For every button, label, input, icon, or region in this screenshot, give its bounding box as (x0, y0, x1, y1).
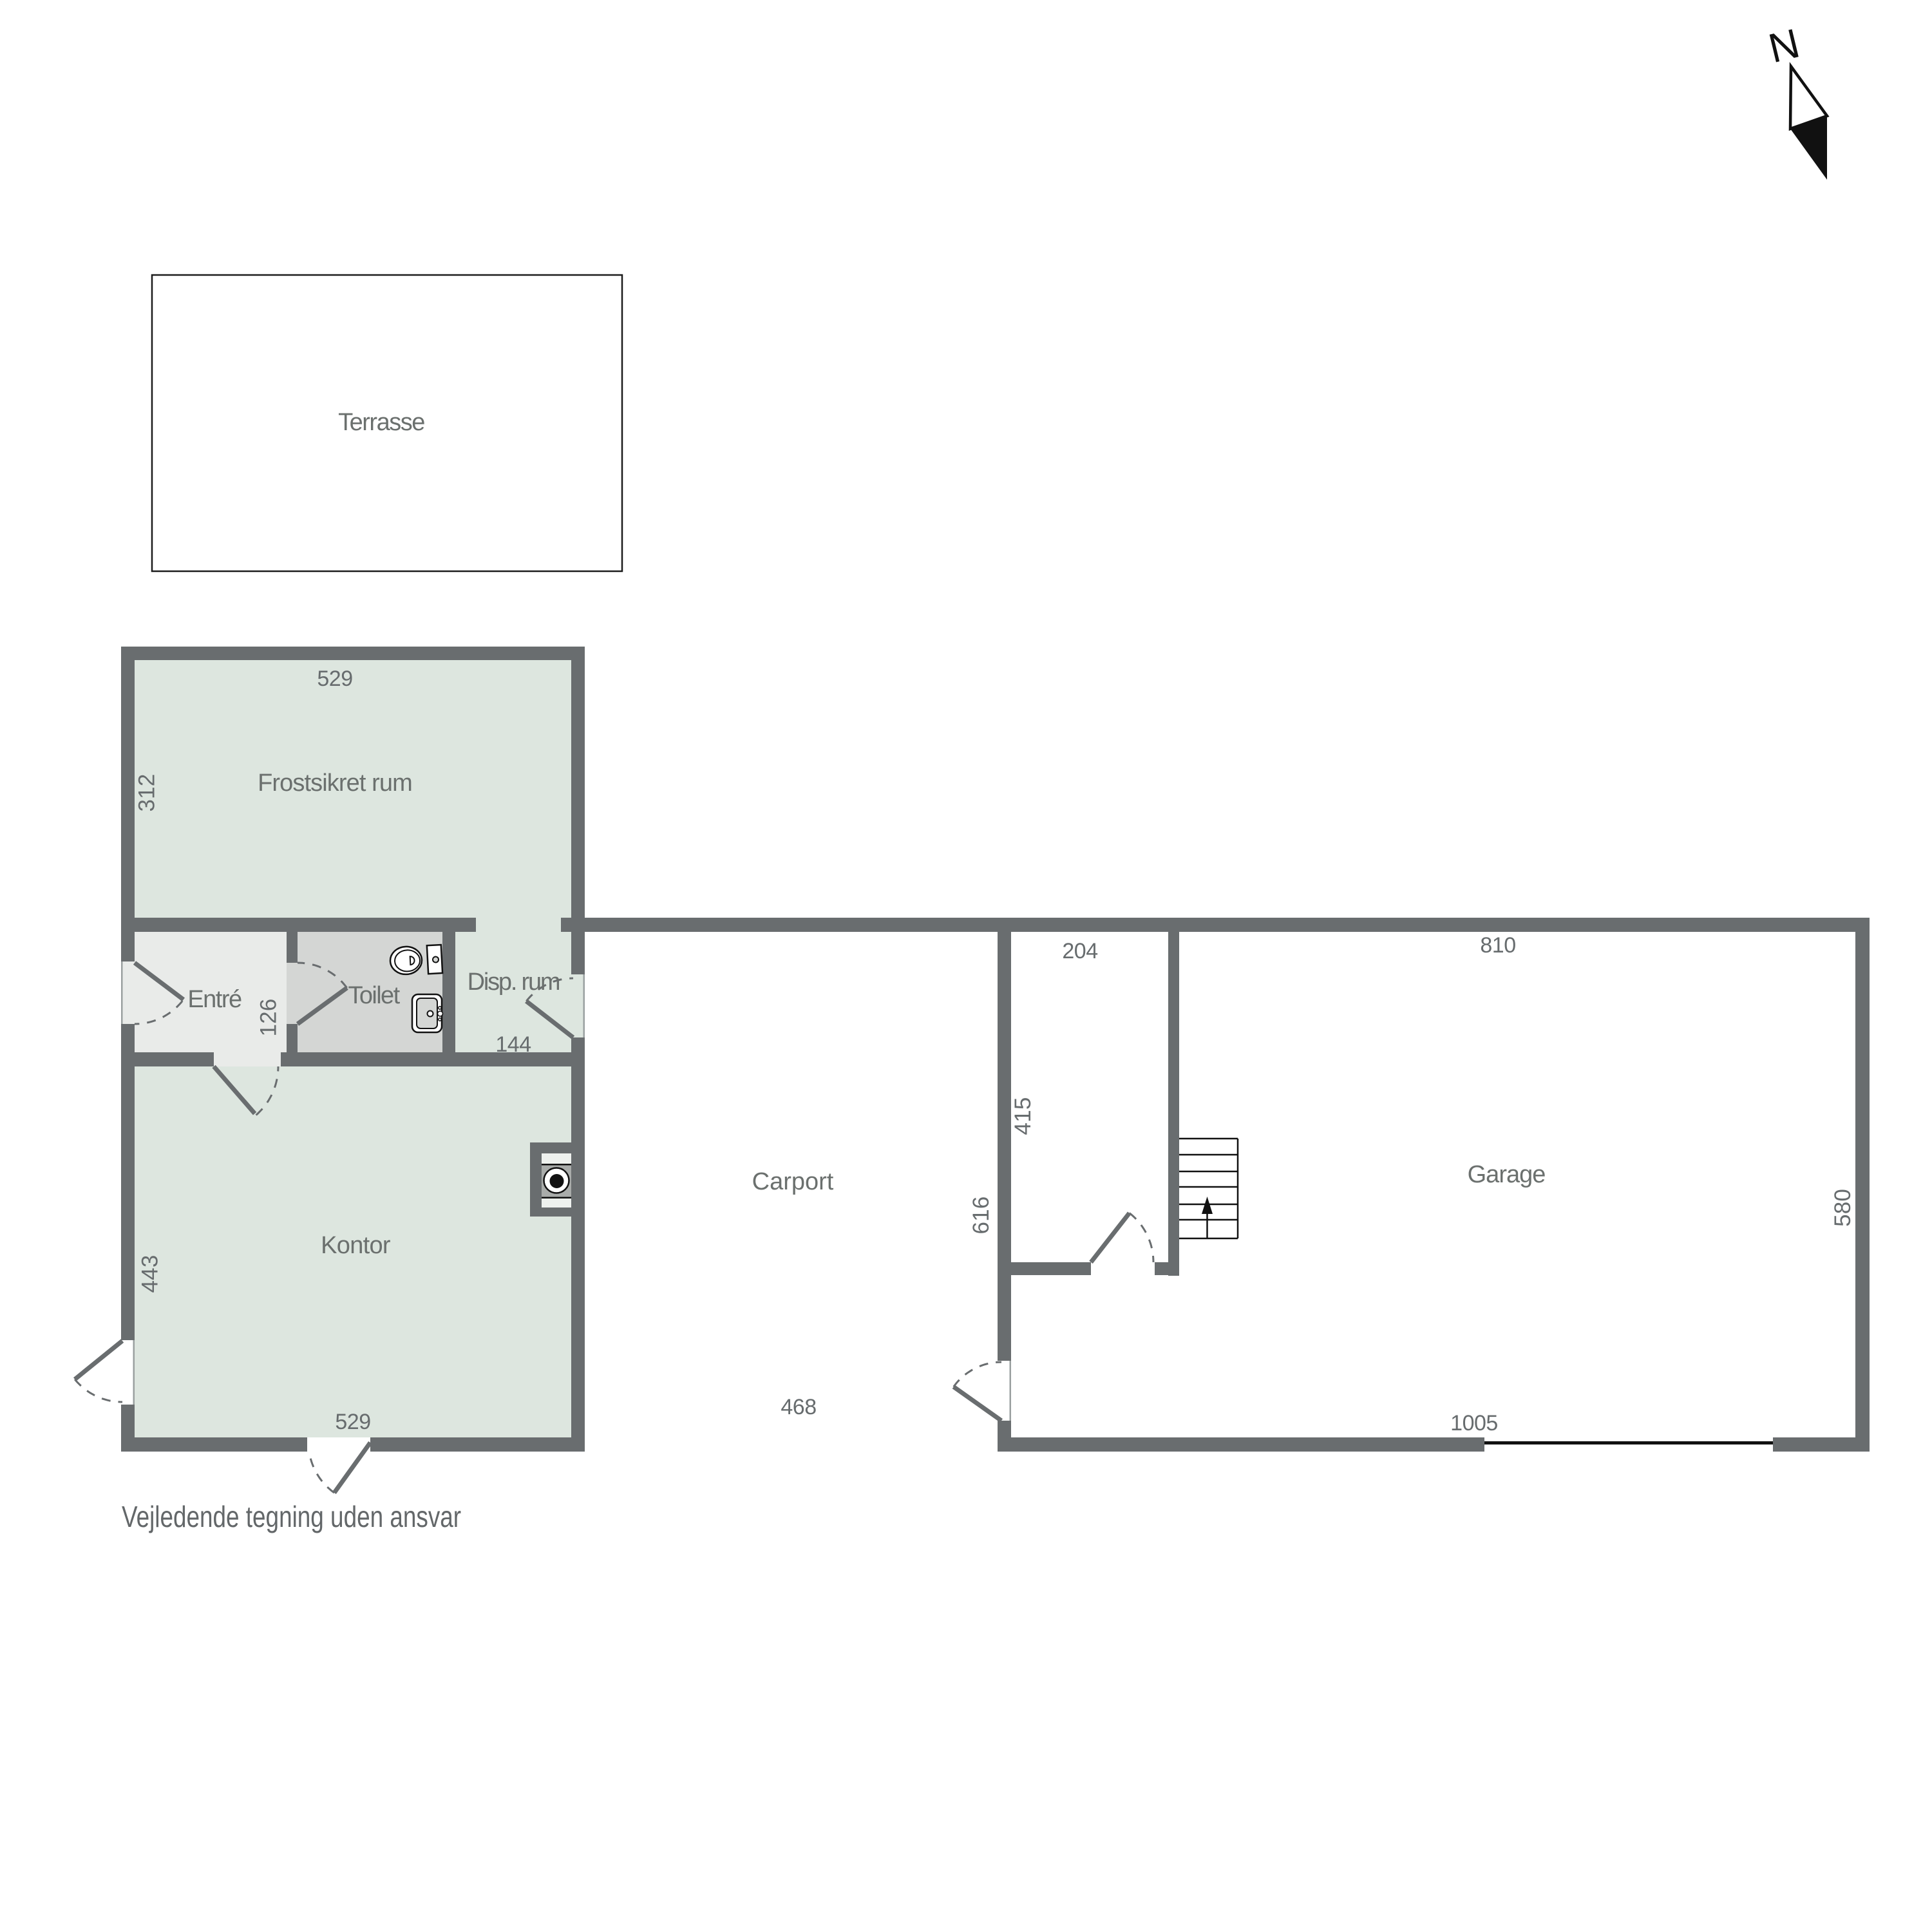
svg-text:468: 468 (781, 1395, 816, 1419)
svg-text:415: 415 (1010, 1097, 1036, 1135)
svg-text:Toilet: Toilet (348, 982, 400, 1009)
svg-text:1005: 1005 (1450, 1411, 1498, 1435)
svg-text:Garage: Garage (1468, 1161, 1546, 1188)
svg-text:Carport: Carport (752, 1168, 834, 1195)
svg-text:443: 443 (138, 1255, 163, 1293)
svg-text:Terrasse: Terrasse (338, 409, 424, 436)
svg-text:810: 810 (1480, 933, 1515, 958)
svg-text:Entré: Entré (187, 986, 241, 1013)
svg-text:529: 529 (317, 667, 352, 691)
svg-text:Vejledende tegning uden ansvar: Vejledende tegning uden ansvar (122, 1500, 461, 1533)
svg-text:126: 126 (256, 999, 281, 1037)
svg-text:Frostsikret rum: Frostsikret rum (258, 770, 412, 797)
svg-text:Kontor: Kontor (321, 1232, 391, 1259)
svg-text:Disp. rum: Disp. rum (468, 969, 560, 996)
svg-text:529: 529 (335, 1410, 370, 1434)
svg-text:144: 144 (495, 1032, 531, 1057)
svg-text:580: 580 (1830, 1189, 1855, 1227)
svg-text:312: 312 (135, 774, 160, 812)
svg-text:204: 204 (1062, 939, 1097, 963)
svg-text:616: 616 (969, 1197, 994, 1235)
